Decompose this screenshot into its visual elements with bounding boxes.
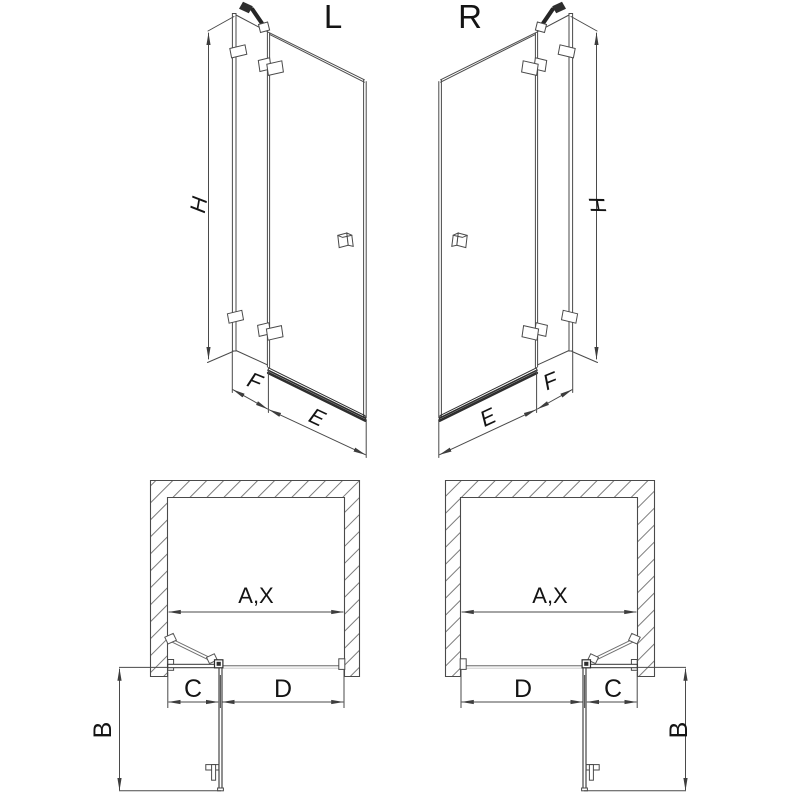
dimension-H xyxy=(208,17,235,363)
label-variant-right: R xyxy=(458,0,482,35)
label-c-left: C xyxy=(184,675,202,703)
technical-diagram-canvas: L R H H F F E E A,X A,X C C D D B B xyxy=(0,0,800,800)
label-height-right: H xyxy=(584,195,611,215)
support-bar-clamp xyxy=(259,22,270,33)
label-b-right: B xyxy=(665,722,693,739)
dimension-B xyxy=(119,667,221,790)
label-b-left: B xyxy=(89,722,117,739)
label-d-right: D xyxy=(514,675,532,703)
door-handle xyxy=(338,233,353,248)
label-door-width-left: E xyxy=(305,403,329,432)
door-panel xyxy=(267,32,366,418)
pivot-pin xyxy=(217,662,221,666)
elevation-right-drawing xyxy=(439,2,598,458)
label-opening-left: A,X xyxy=(238,583,274,608)
support-bar-wall-plate xyxy=(239,2,253,13)
elevation-left-drawing xyxy=(208,2,367,458)
support-bar xyxy=(239,2,270,33)
label-opening-right: A,X xyxy=(532,583,568,608)
label-d-left: D xyxy=(274,675,292,703)
diagram-labels: L R H H F F E E A,X A,X C C D D B B xyxy=(89,0,693,738)
magnet-profile xyxy=(339,659,345,670)
label-fixed-width-right: F xyxy=(539,366,562,395)
label-door-width-right: E xyxy=(476,403,500,432)
fixed-panel-plan xyxy=(168,664,218,667)
shower-door-technical-diagram: { "diagram": { "views": [ {"id": "elevat… xyxy=(0,0,800,800)
label-variant-left: L xyxy=(324,0,342,35)
label-fixed-width-left: F xyxy=(244,367,267,396)
label-c-right: C xyxy=(604,675,622,703)
wall-bracket-bottom xyxy=(227,310,243,323)
